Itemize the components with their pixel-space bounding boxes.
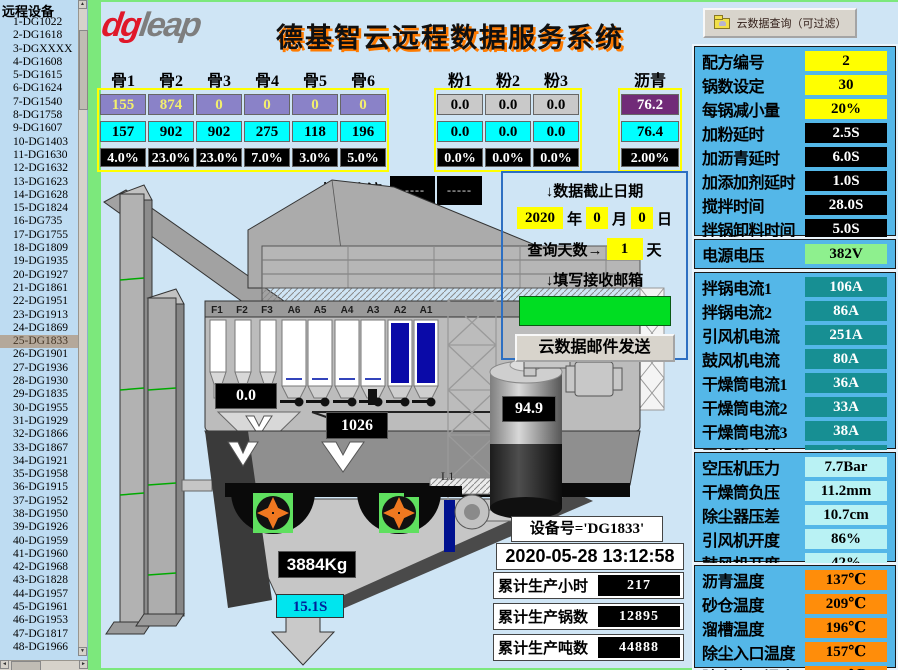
- asphalt-tank: [490, 359, 562, 519]
- powder-columns: 粉1 0.0 0.0 0.0% 粉2 0.0 0.0 0.0% 粉3 0.0 0…: [434, 64, 582, 170]
- logo-dg: dg: [99, 6, 142, 44]
- actual-value: 275: [244, 121, 290, 142]
- temperature-label: 除尘出口温度: [702, 664, 795, 670]
- logo-leap: leap: [137, 6, 202, 44]
- top-border: [101, 0, 898, 2]
- dgleap-logo: dgleap: [99, 6, 202, 45]
- actual-value: 0.0: [533, 121, 579, 142]
- discharge-time-display: 15.1S: [276, 594, 344, 618]
- sidebar-item[interactable]: 29-DG1835: [0, 388, 79, 401]
- material-header: 骨4: [244, 67, 290, 88]
- days-input[interactable]: 1: [607, 238, 643, 260]
- sidebar-item[interactable]: 25-DG1833: [0, 335, 79, 348]
- current-value: 38A: [805, 421, 887, 441]
- sidebar-item[interactable]: 39-DG1926: [0, 521, 79, 534]
- material-column: 沥青 76.2 76.4 2.00%: [621, 67, 679, 167]
- stat-row: 累计生产吨数 44888: [493, 634, 684, 661]
- current-value: 36A: [805, 373, 887, 393]
- datetime-display: 2020-05-28 13:12:58: [496, 543, 684, 570]
- actual-value: 0.0: [485, 121, 531, 142]
- hot-bin-label: A6: [288, 305, 301, 316]
- device-list: 1-DG10222-DG16183-DGXXXX4-DG16085-DG1615…: [0, 16, 79, 656]
- actual-value: 196: [340, 121, 386, 142]
- sidebar-item[interactable]: 43-DG1828: [0, 574, 79, 587]
- material-header: 骨3: [196, 67, 242, 88]
- pressure-row: 除尘器压差 10.7cm: [695, 503, 895, 527]
- sidebar-item[interactable]: 42-DG1968: [0, 561, 79, 574]
- temperatures-section: 沥青温度 137℃ 砂仓温度 209℃ 溜槽温度 196℃ 除尘入口温度 157…: [694, 565, 896, 668]
- sidebar-item[interactable]: 22-DG1951: [0, 295, 79, 308]
- temperature-row: 沥青温度 137℃: [695, 568, 895, 592]
- param-row: 搅拌时间 28.0S: [695, 193, 895, 217]
- scada-window: 远程设备 1-DG10222-DG16183-DGXXXX4-DG16085-D…: [0, 0, 898, 670]
- param-value: 28.0S: [805, 195, 887, 215]
- days-label: 查询天数→: [527, 239, 602, 260]
- material-header: 粉1: [437, 67, 483, 88]
- material-column: 骨6 0 196 5.0%: [340, 67, 386, 167]
- sidebar-item[interactable]: 9-DG1607: [0, 122, 79, 135]
- material-header: 骨6: [340, 67, 386, 88]
- temperature-label: 溜槽温度: [702, 616, 764, 640]
- sidebar-item[interactable]: 10-DG1403: [0, 136, 79, 149]
- param-value: 6.0S: [805, 147, 887, 167]
- stat-value: 217: [598, 575, 680, 596]
- stat-value: 12895: [598, 606, 680, 627]
- sidebar-item[interactable]: 2-DG1618: [0, 29, 79, 42]
- fine-bin-label: F1: [211, 305, 223, 316]
- email-title: ↓填写接收邮箱: [503, 269, 686, 290]
- sidebar-item[interactable]: 47-DG1817: [0, 628, 79, 641]
- param-row: 加沥青延时 6.0S: [695, 145, 895, 169]
- sidebar-item[interactable]: 26-DG1901: [0, 348, 79, 361]
- sidebar-item[interactable]: 27-DG1936: [0, 362, 79, 375]
- asphalt-pipe: [404, 486, 462, 497]
- current-row: 干燥筒电流2 33A: [695, 395, 895, 419]
- sidebar-item[interactable]: 13-DG1623: [0, 176, 79, 189]
- temperature-value: 137℃: [805, 570, 887, 590]
- sidebar-item[interactable]: 40-DG1959: [0, 535, 79, 548]
- param-label: 加添加剂延时: [702, 169, 795, 193]
- sidebar-item[interactable]: 15-DG1824: [0, 202, 79, 215]
- actual-value: 0.0: [437, 121, 483, 142]
- target-value: 76.2: [621, 94, 679, 115]
- mixer-body: [205, 431, 640, 485]
- material-header: 骨5: [292, 67, 338, 88]
- current-label: 干燥筒电流3: [702, 419, 787, 443]
- param-label: 加粉延时: [702, 121, 764, 145]
- actual-value: 902: [196, 121, 242, 142]
- year-unit: 年: [567, 208, 582, 229]
- current-value: 80A: [805, 349, 887, 369]
- current-label: 干燥筒电流1: [702, 371, 787, 395]
- pressure-value: 7.7Bar: [805, 457, 887, 477]
- asphalt-weight-display: 94.9: [502, 396, 556, 422]
- power-section: 电源电压 382V: [694, 239, 896, 269]
- current-value: 33A: [805, 397, 887, 417]
- target-value: 874: [148, 94, 194, 115]
- stat-label: 累计生产吨数: [498, 637, 588, 658]
- fine-bin-label: F3: [261, 305, 273, 316]
- param-value: 2.5S: [805, 123, 887, 143]
- fine-bin-label: F2: [236, 305, 248, 316]
- year-input[interactable]: 2020: [517, 207, 563, 229]
- material-column: 骨3 0 902 23.0%: [196, 67, 242, 167]
- email-input[interactable]: [519, 296, 671, 326]
- material-header: 粉2: [485, 67, 531, 88]
- target-value: 155: [100, 94, 146, 115]
- stat-row: 累计生产小时 217: [493, 572, 684, 599]
- page-title: 德基智云远程数据服务系统: [240, 16, 660, 55]
- temperature-row: 溜槽温度 196℃: [695, 616, 895, 640]
- sidebar-item[interactable]: 16-DG735: [0, 215, 79, 228]
- day-unit: 日: [657, 208, 672, 229]
- fine-weight-display: 0.0: [215, 383, 277, 409]
- level-bar: [444, 500, 455, 552]
- material-header: 沥青: [621, 67, 679, 88]
- pressure-value: 10.7cm: [805, 505, 887, 525]
- date-title: ↓数据截止日期: [503, 180, 686, 201]
- param-label: 锅数设定: [702, 73, 764, 97]
- material-header: 骨2: [148, 67, 194, 88]
- horizontal-scrollbar[interactable]: ◄ ►: [0, 660, 88, 670]
- scroll-down-icon[interactable]: ▼: [78, 647, 87, 656]
- param-label: 加沥青延时: [702, 145, 780, 169]
- param-row: 加粉延时 2.5S: [695, 121, 895, 145]
- current-row: 拌锅电流1 106A: [695, 275, 895, 299]
- power-label: 电源电压: [702, 242, 764, 266]
- pressures-section: 空压机压力 7.7Bar 干燥筒负压 11.2mm 除尘器压差 10.7cm 引…: [694, 452, 896, 562]
- data-query-panel: ↓数据截止日期 2020 年 0 月 0 日 查询天数→ 1 天 ↓填写接收邮箱…: [501, 171, 688, 360]
- param-value: 20%: [805, 99, 887, 119]
- asphalt-column: 沥青 76.2 76.4 2.00%: [618, 64, 682, 170]
- pressure-value: 86%: [805, 529, 887, 549]
- pressure-label: 引风机开度: [702, 527, 780, 551]
- actual-value: 118: [292, 121, 338, 142]
- pressure-value: 11.2mm: [805, 481, 887, 501]
- folder-icon: [714, 18, 730, 29]
- days-unit: 天: [647, 239, 662, 260]
- currents-section: 拌锅电流1 106A 拌锅电流2 86A 引风机电流 251A 鼓风机电流 80…: [694, 272, 896, 449]
- sidebar-item[interactable]: 24-DG1869: [0, 322, 79, 335]
- pressure-label: 干燥筒负压: [702, 479, 780, 503]
- mixer-paddle-1: [256, 496, 290, 530]
- temperature-row: 除尘入口温度 157℃: [695, 640, 895, 664]
- sidebar-item[interactable]: 4-DG1608: [0, 56, 79, 69]
- target-value: 0: [340, 94, 386, 115]
- pressure-label: 除尘器压差: [702, 503, 780, 527]
- sidebar-item[interactable]: 48-DG1966: [0, 641, 79, 654]
- cloud-query-label: 云数据查询（可过滤）: [737, 15, 847, 31]
- sidebar-item[interactable]: 18-DG1809: [0, 242, 79, 255]
- material-column: 骨5 0 118 3.0%: [292, 67, 338, 167]
- actual-value: 157: [100, 121, 146, 142]
- sidebar-item[interactable]: 8-DG1758: [0, 109, 79, 122]
- stat-row: 累计生产锅数 12895: [493, 603, 684, 630]
- material-header: 骨1: [100, 67, 146, 88]
- scroll-up-icon[interactable]: ▲: [78, 0, 87, 9]
- sidebar-item[interactable]: 45-DG1961: [0, 601, 79, 614]
- power-value: 382V: [805, 244, 887, 264]
- pressure-row: 引风机开度 86%: [695, 527, 895, 551]
- temperature-row: 砂仓温度 209℃: [695, 592, 895, 616]
- sidebar-item[interactable]: 3-DGXXXX: [0, 43, 79, 56]
- temperature-value: 157℃: [805, 642, 887, 662]
- material-column: 骨2 874 902 23.0%: [148, 67, 194, 167]
- hot-bin-label: A3: [367, 305, 380, 316]
- current-value: 251A: [805, 325, 887, 345]
- current-value: 106A: [805, 277, 887, 297]
- param-label: 配方编号: [702, 49, 764, 73]
- sidebar-item[interactable]: 14-DG1628: [0, 189, 79, 202]
- hot-bin-a2-level: [391, 323, 409, 383]
- sidebar-item[interactable]: 6-DG1624: [0, 82, 79, 95]
- pressure-row: 空压机压力 7.7Bar: [695, 455, 895, 479]
- current-row: 干燥筒电流1 36A: [695, 371, 895, 395]
- target-value: 0: [292, 94, 338, 115]
- target-value: 0.0: [437, 94, 483, 115]
- scroll-left-icon[interactable]: ◄: [0, 660, 9, 669]
- param-row: 拌锅卸料时间 5.0S: [695, 217, 895, 241]
- sidebar-item[interactable]: 11-DG1630: [0, 149, 79, 162]
- current-row: 鼓风机电流 80A: [695, 347, 895, 371]
- stat-label: 累计生产小时: [498, 575, 588, 596]
- month-input[interactable]: 0: [586, 207, 608, 229]
- power-row: 电源电压 382V: [695, 242, 895, 266]
- month-unit: 月: [612, 208, 627, 229]
- param-value: 30: [805, 75, 887, 95]
- param-row: 锅数设定 30: [695, 73, 895, 97]
- mixer-paddle-2: [382, 496, 416, 530]
- param-value: 2: [805, 51, 887, 71]
- aggregate-weight-display: 1026: [326, 412, 388, 439]
- sidebar-item[interactable]: 17-DG1755: [0, 229, 79, 242]
- current-label: 引风机电流: [702, 323, 780, 347]
- material-column: 粉3 0.0 0.0 0.0%: [533, 67, 579, 167]
- hot-bin-label: A4: [341, 305, 354, 316]
- material-column: 粉2 0.0 0.0 0.0%: [485, 67, 531, 167]
- stat-value: 44888: [598, 637, 680, 658]
- current-row: 拌锅电流2 86A: [695, 299, 895, 323]
- mix-weight-display: 3884Kg: [278, 551, 356, 578]
- pipe-l1-label: L1: [441, 469, 454, 483]
- current-label: 拌锅电流2: [702, 299, 772, 323]
- pressure-row: 干燥筒负压 11.2mm: [695, 479, 895, 503]
- recipe-params-section: 配方编号 2 锅数设定 30 每锅减小量 20% 加粉延时 2.5S 加沥青延时…: [694, 46, 896, 236]
- sidebar-item[interactable]: 12-DG1632: [0, 162, 79, 175]
- day-input[interactable]: 0: [631, 207, 653, 229]
- sidebar-item[interactable]: 20-DG1927: [0, 269, 79, 282]
- target-value: 0.0: [485, 94, 531, 115]
- hot-bin-label: A5: [314, 305, 327, 316]
- param-label: 每锅减小量: [702, 97, 780, 121]
- target-value: 0.0: [533, 94, 579, 115]
- param-label: 拌锅卸料时间: [702, 217, 795, 241]
- bucket-elevator-1: [106, 185, 152, 634]
- temperature-label: 沥青温度: [702, 568, 764, 592]
- hot-bin-label: A2: [394, 305, 407, 316]
- material-column: 骨1 155 157 4.0%: [100, 67, 146, 167]
- scroll-right-icon[interactable]: ►: [79, 660, 88, 669]
- param-row: 加添加剂延时 1.0S: [695, 169, 895, 193]
- hot-bin-a1-level: [417, 323, 435, 383]
- sidebar-item[interactable]: 34-DG1921: [0, 455, 79, 468]
- temperature-value: 127℃: [805, 666, 887, 670]
- temperature-row: 除尘出口温度 127℃: [695, 664, 895, 670]
- sidebar-item[interactable]: 28-DG1930: [0, 375, 79, 388]
- sidebar-item[interactable]: 1-DG1022: [0, 16, 79, 29]
- sidebar-item[interactable]: 38-DG1950: [0, 508, 79, 521]
- vertical-scrollbar[interactable]: ▲ ▼: [78, 0, 87, 656]
- cloud-query-button[interactable]: 云数据查询（可过滤）: [703, 8, 857, 38]
- material-column: 骨4 0 275 7.0%: [244, 67, 290, 167]
- sidebar-item[interactable]: 36-DG1915: [0, 481, 79, 494]
- param-value: 5.0S: [805, 219, 887, 239]
- current-label: 干燥筒电流2: [702, 395, 787, 419]
- current-row: 引风机电流 251A: [695, 323, 895, 347]
- target-value: 0: [196, 94, 242, 115]
- target-value: 0: [244, 94, 290, 115]
- temperature-label: 砂仓温度: [702, 592, 764, 616]
- current-label: 鼓风机电流: [702, 347, 780, 371]
- sidebar-item[interactable]: 31-DG1929: [0, 415, 79, 428]
- hot-bin-label: A1: [420, 305, 433, 316]
- temperature-label: 除尘入口温度: [702, 640, 795, 664]
- aggregate-columns: 骨1 155 157 4.0% 骨2 874 902 23.0% 骨3 0 90…: [97, 64, 389, 170]
- actual-value: 76.4: [621, 121, 679, 142]
- vertical-scroll-thumb[interactable]: [79, 30, 88, 110]
- sidebar-item[interactable]: 44-DG1957: [0, 588, 79, 601]
- sidebar-item[interactable]: 35-DG1958: [0, 468, 79, 481]
- sidebar-item[interactable]: 33-DG1867: [0, 442, 79, 455]
- sidebar-item[interactable]: 32-DG1866: [0, 428, 79, 441]
- temperature-value: 196℃: [805, 618, 887, 638]
- material-column: 粉1 0.0 0.0 0.0%: [437, 67, 483, 167]
- sidebar-item[interactable]: 19-DG1935: [0, 255, 79, 268]
- sidebar-item[interactable]: 37-DG1952: [0, 495, 79, 508]
- sidebar-item[interactable]: 21-DG1861: [0, 282, 79, 295]
- param-label: 搅拌时间: [702, 193, 764, 217]
- sidebar-item[interactable]: 41-DG1960: [0, 548, 79, 561]
- sidebar-item[interactable]: 7-DG1540: [0, 96, 79, 109]
- production-stats: 累计生产小时 217 累计生产锅数 12895 累计生产吨数 44888: [493, 572, 684, 665]
- actual-value: 902: [148, 121, 194, 142]
- device-sidebar: 远程设备 1-DG10222-DG16183-DGXXXX4-DG16085-D…: [0, 0, 88, 670]
- temperature-value: 209℃: [805, 594, 887, 614]
- side-pipe: [182, 480, 212, 491]
- device-id-label: 设备号='DG1833': [511, 516, 663, 542]
- send-email-button[interactable]: 云数据邮件发送: [515, 334, 675, 362]
- current-value: 86A: [805, 301, 887, 321]
- sidebar-item[interactable]: 46-DG1953: [0, 614, 79, 627]
- sidebar-item[interactable]: 23-DG1913: [0, 309, 79, 322]
- sidebar-item[interactable]: 5-DG1615: [0, 69, 79, 82]
- param-value: 1.0S: [805, 171, 887, 191]
- current-row: 干燥筒电流3 38A: [695, 419, 895, 443]
- horizontal-scroll-thumb[interactable]: [11, 661, 41, 670]
- current-label: 拌锅电流1: [702, 275, 772, 299]
- stat-label: 累计生产锅数: [498, 606, 588, 627]
- param-row: 配方编号 2: [695, 49, 895, 73]
- sidebar-item[interactable]: 30-DG1955: [0, 402, 79, 415]
- material-header: 粉3: [533, 67, 579, 88]
- param-row: 每锅减小量 20%: [695, 97, 895, 121]
- pressure-label: 空压机压力: [702, 455, 780, 479]
